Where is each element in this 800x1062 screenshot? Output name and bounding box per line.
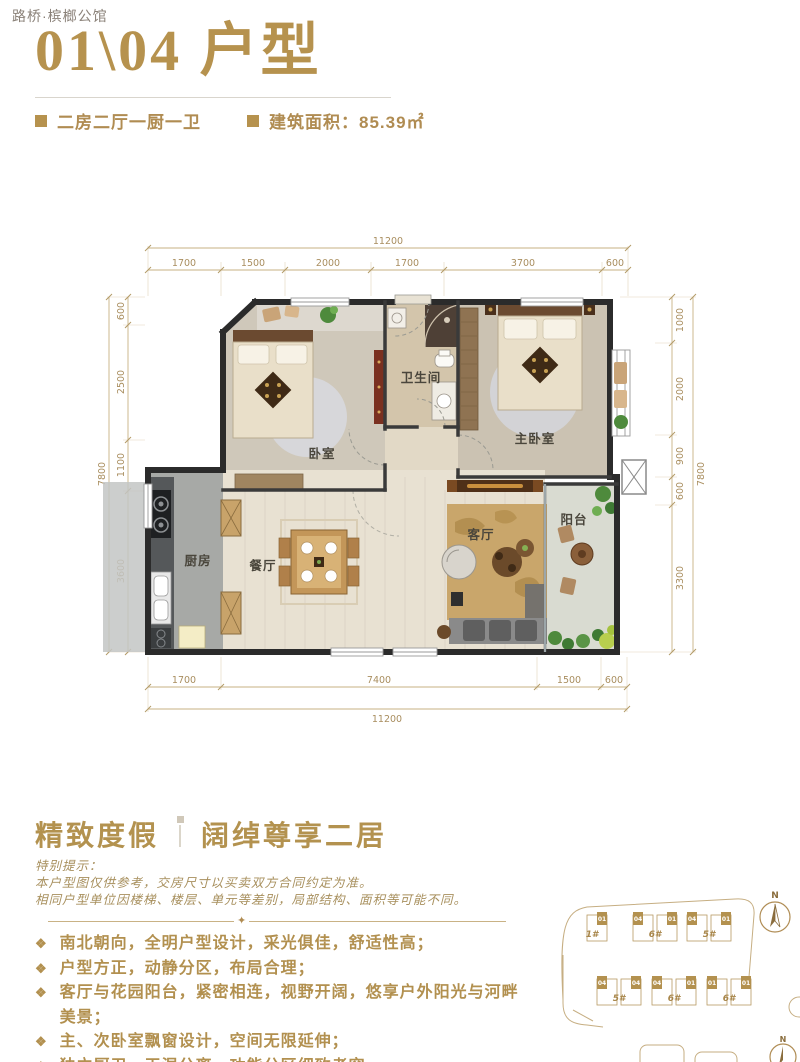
unit-chip: 01 bbox=[708, 980, 716, 987]
label-master: 主卧室 bbox=[515, 431, 556, 446]
list-item: ❖ 户型方正，动静分区，布局合理； bbox=[35, 957, 535, 982]
master-bed-icon bbox=[485, 304, 595, 410]
building-name: 6# bbox=[723, 994, 737, 1004]
label-dining: 餐厅 bbox=[248, 558, 276, 573]
feature-text: 户型方正，动静分区，布局合理； bbox=[60, 957, 315, 982]
feature-list: ❖ 南北朝向，全明户型设计，采光俱佳，舒适性高； ❖ 户型方正，动静分区，布局合… bbox=[35, 932, 535, 1062]
tagline: 精致度假 阔绰尊享二居 bbox=[35, 814, 387, 854]
notice-title: 特别提示： bbox=[35, 858, 467, 875]
bay-window-seat bbox=[614, 362, 628, 429]
dim-right-3: 600 bbox=[675, 482, 686, 500]
diamond-bullet-icon: ❖ bbox=[35, 932, 48, 957]
dim-right-total: 7800 bbox=[696, 462, 707, 486]
floor-plan-svg: 11200 1700 1500 2000 1700 3700 600 1700 … bbox=[95, 232, 725, 732]
dim-bottom-0: 1700 bbox=[172, 675, 196, 686]
dim-left-2: 1100 bbox=[116, 453, 127, 477]
spec-area: 建筑面积：85.39㎡ bbox=[269, 108, 425, 133]
square-bullet-icon bbox=[35, 115, 47, 127]
notice-line-1: 本户型图仅供参考，交房尺寸以买卖双方合同约定为准。 bbox=[35, 875, 467, 892]
tagline-seal bbox=[173, 816, 187, 852]
dim-right-2: 900 bbox=[675, 447, 686, 465]
master-wardrobe bbox=[460, 308, 478, 430]
unit-chip: 04 bbox=[634, 916, 642, 923]
dim-top-5: 600 bbox=[606, 258, 624, 269]
unit-chip: 04 bbox=[598, 980, 606, 987]
label-kitchen: 厨房 bbox=[184, 553, 211, 568]
label-bedroom: 卧室 bbox=[308, 446, 335, 461]
dining-table-icon bbox=[279, 520, 359, 604]
section-divider: ✦ bbox=[48, 914, 506, 928]
dim-top-0: 1700 bbox=[172, 258, 196, 269]
building-name: 6# bbox=[668, 994, 682, 1004]
title-underline bbox=[35, 97, 391, 98]
square-bullet-icon bbox=[247, 115, 259, 127]
site-partial-buildings bbox=[640, 997, 800, 1062]
unit-chip: 01 bbox=[668, 916, 676, 923]
floor-lamp-icon bbox=[437, 625, 451, 639]
dim-left-1: 2500 bbox=[116, 370, 127, 394]
diamond-bullet-icon: ❖ bbox=[35, 957, 48, 982]
building-name: 6# bbox=[649, 930, 663, 940]
list-item: ❖ 南北朝向，全明户型设计，采光俱佳，舒适性高； bbox=[35, 932, 535, 957]
dim-bottom-1: 7400 bbox=[367, 675, 391, 686]
feature-text: 主、次卧室飘窗设计，空间无限延伸； bbox=[60, 1030, 349, 1055]
unit-chip: 01 bbox=[742, 980, 750, 987]
building-name: 5# bbox=[703, 930, 717, 940]
dim-top-1: 1500 bbox=[241, 258, 265, 269]
list-item: ❖ 客厅与花园阳台，紧密相连，视野开阔，悠享户外阳光与河畔美景； bbox=[35, 981, 535, 1030]
dim-right-1: 2000 bbox=[675, 377, 686, 401]
building-name: 1# bbox=[586, 930, 600, 940]
dim-top-3: 1700 bbox=[395, 258, 419, 269]
diamond-bullet-icon: ❖ bbox=[35, 981, 48, 1006]
dim-right-0: 1000 bbox=[675, 308, 686, 332]
notice-line-2: 相同户型单位因楼梯、楼层、单元等差别，局部结构、面积等可能不同。 bbox=[35, 892, 467, 909]
spec-layout: 二房二厅一厨一卫 bbox=[57, 108, 201, 133]
unit-chip: 04 bbox=[688, 916, 696, 923]
tagline-right: 阔绰尊享二居 bbox=[201, 814, 387, 854]
building-name: 5# bbox=[613, 994, 627, 1004]
dim-bottom-2: 1500 bbox=[557, 675, 581, 686]
dim-left-0: 600 bbox=[116, 302, 127, 320]
fridge-icon bbox=[179, 626, 205, 648]
chaise-icon bbox=[525, 584, 545, 618]
dim-top-total: 11200 bbox=[373, 236, 403, 247]
feature-text: 独立厨卫，干湿分离，功能分区细致考究。 bbox=[60, 1055, 383, 1062]
page-title: 01\04 户型 bbox=[35, 22, 322, 80]
compass-icon: N bbox=[760, 891, 790, 932]
entry-threshold bbox=[395, 295, 431, 304]
bed-icon bbox=[233, 330, 313, 438]
list-item: ❖ 主、次卧室飘窗设计，空间无限延伸； bbox=[35, 1030, 535, 1055]
neighbour-area bbox=[103, 482, 148, 652]
feature-text: 南北朝向，全明户型设计，采光俱佳，舒适性高； bbox=[60, 932, 434, 957]
unit-chip: 01 bbox=[598, 916, 606, 923]
tagline-left: 精致度假 bbox=[35, 814, 159, 854]
label-living: 客厅 bbox=[466, 527, 494, 542]
spec-row: 二房二厅一厨一卫 建筑面积：85.39㎡ bbox=[35, 108, 425, 133]
dim-bottom-total: 11200 bbox=[372, 714, 402, 725]
living-furniture bbox=[437, 480, 547, 644]
unit-chip: 04 bbox=[632, 980, 640, 987]
unit-chip: 01 bbox=[687, 980, 695, 987]
dim-bottom-3: 600 bbox=[605, 675, 623, 686]
diamond-bullet-icon: ❖ bbox=[35, 1030, 48, 1055]
floor-plan: 11200 1700 1500 2000 1700 3700 600 1700 … bbox=[95, 232, 725, 732]
north-label: N bbox=[780, 1035, 787, 1044]
dim-top-4: 3700 bbox=[511, 258, 535, 269]
site-buildings bbox=[587, 912, 751, 1005]
list-item: ❖ 独立厨卫，干湿分离，功能分区细致考究。 bbox=[35, 1055, 535, 1062]
site-plan-svg: 01 04 01 04 01 04 04 04 01 01 01 1# 6# 5… bbox=[545, 885, 800, 1062]
divider-ornament-icon: ✦ bbox=[234, 914, 249, 927]
north-label: N bbox=[771, 891, 779, 901]
dim-top-2: 2000 bbox=[316, 258, 340, 269]
label-bathroom: 卫生间 bbox=[401, 370, 442, 385]
floorplan-poster: { "header": { "brand": "路桥·槟榔公馆" }, "tit… bbox=[0, 0, 800, 1062]
notice-block: 特别提示： 本户型图仅供参考，交房尺寸以买卖双方合同约定为准。 相同户型单位因楼… bbox=[35, 858, 467, 909]
site-plan: 01 04 01 04 01 04 04 04 01 01 01 1# 6# 5… bbox=[545, 885, 800, 1062]
compass-icon-partial: N bbox=[770, 1035, 796, 1062]
washer-icon bbox=[388, 308, 406, 328]
unit-chip: 04 bbox=[653, 980, 661, 987]
feature-text: 客厅与花园阳台，紧密相连，视野开阔，悠享户外阳光与河畔美景； bbox=[60, 981, 535, 1030]
bedroom-wardrobe bbox=[235, 474, 303, 489]
unit-chip: 01 bbox=[722, 916, 730, 923]
dim-right-4: 3300 bbox=[675, 566, 686, 590]
diamond-bullet-icon: ❖ bbox=[35, 1055, 48, 1062]
hall-floor bbox=[385, 427, 458, 477]
elevator-shaft bbox=[622, 460, 646, 494]
label-balcony: 阳台 bbox=[560, 512, 587, 527]
